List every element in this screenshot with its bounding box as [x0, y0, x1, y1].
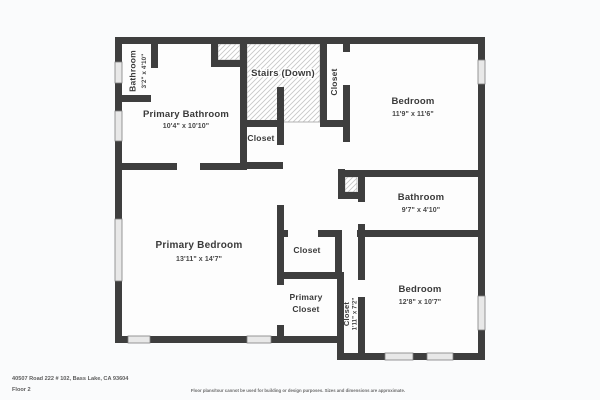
dims-primary-bathroom: 10'4" x 10'10": [163, 123, 209, 130]
window: [427, 353, 453, 360]
label-stairs: Stairs (Down): [251, 68, 315, 79]
label-primary-bathroom: Primary Bathroom: [143, 109, 229, 120]
window: [385, 353, 413, 360]
window: [115, 62, 122, 83]
window: [115, 219, 122, 281]
floor-plan: Bathroom Primary Bathroom Stairs (Down) …: [0, 0, 600, 400]
footer-address: 40507 Road 222 # 102, Bass Lake, CA 9360…: [12, 376, 129, 382]
label-closet-narrow: Closet: [342, 302, 351, 326]
label-bathroom-top-left: Bathroom: [128, 50, 138, 92]
label-closet-top-right: Closet: [329, 68, 339, 95]
dims-bedroom-top-right: 11'9" x 11'6": [392, 111, 434, 118]
chase-hatch-right: [345, 177, 357, 192]
window: [128, 336, 150, 343]
dims-closet-narrow: 1'11" x 7'2": [353, 298, 359, 331]
window: [115, 111, 122, 141]
window: [478, 60, 485, 84]
window: [478, 296, 485, 330]
label-bedroom-top-right: Bedroom: [391, 96, 434, 107]
floor-plan-page: Bathroom Primary Bathroom Stairs (Down) …: [0, 0, 600, 400]
dims-bedroom-bottom-right: 12'8" x 10'7": [399, 299, 441, 306]
chase-hatch-top: [218, 44, 240, 60]
label-primary-closet-line2: Closet: [292, 304, 319, 314]
window: [247, 336, 271, 343]
dims-bathroom-top-left: 3'2" x 4'10": [141, 54, 148, 89]
dims-primary-bedroom: 13'11" x 14'7": [176, 256, 222, 263]
dims-bathroom-right: 9'7" x 4'10": [402, 207, 440, 214]
footer-floor-label: Floor 2: [12, 387, 31, 393]
label-primary-closet-line1: Primary: [289, 292, 322, 302]
label-closet-hall: Closet: [293, 245, 320, 255]
label-primary-bedroom: Primary Bedroom: [156, 240, 243, 251]
footer-disclaimer: Floor plans/tour cannot be used for buil…: [191, 388, 405, 393]
label-closet-under-stairs: Closet: [247, 133, 274, 143]
label-bedroom-bottom-right: Bedroom: [398, 284, 441, 295]
label-bathroom-right: Bathroom: [398, 192, 444, 203]
